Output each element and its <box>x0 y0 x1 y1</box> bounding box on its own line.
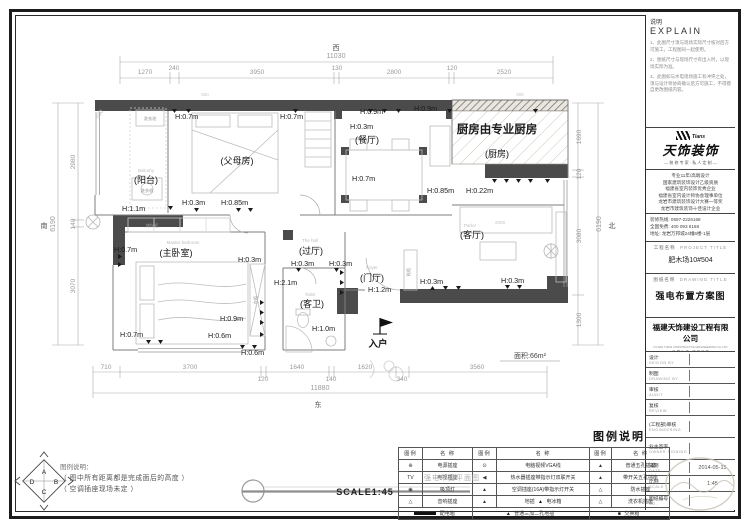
field-drawing-by: 制图DRAWING BY <box>646 368 735 384</box>
legend-header: 图例 <box>473 448 497 460</box>
waterproof-socket-icon: △ <box>590 484 612 496</box>
height-label: H:0.85m <box>427 186 454 195</box>
dim: 140 <box>326 376 337 383</box>
fixture-wardrobe: 衣柜 <box>252 296 259 304</box>
dim: 3700 <box>183 364 198 371</box>
field-cn: 复核 <box>649 402 689 409</box>
switched-socket-icon: ▲ <box>590 472 612 484</box>
kitchen-hatched-area <box>452 111 568 164</box>
legend-label: 电冰箱 <box>546 498 561 505</box>
height-label: H:0.6m <box>241 348 264 357</box>
field-design: 设计DESIGN BY <box>646 352 735 368</box>
credential-line: 龙岩市建筑装饰设计大赛一等奖 <box>650 199 731 206</box>
contact-address: 地址: 龙岩万邦城24幢6楼-1层 <box>650 230 731 237</box>
legend-row: ⊕ 电源插座 ⊙ 电脑视频VGA线 ▲ 普通五孔插座 <box>399 460 670 472</box>
dim-minor: 2000 <box>495 220 506 225</box>
compass-c: C <box>42 489 47 496</box>
legend-label: 热水器插座带指示灯双联开关 <box>497 472 590 484</box>
legend-label: ■ 交换箱 <box>590 508 670 520</box>
explain-title-en: EXPLAIN <box>650 26 731 36</box>
height-label: H:0.6m <box>208 331 231 340</box>
legend-label: 交换箱 <box>624 510 639 517</box>
legend-label: 配电箱 <box>399 508 473 520</box>
height-label: H:1.2m <box>368 285 391 294</box>
height-label: H:0.3m <box>420 277 443 286</box>
dim: 710 <box>101 364 112 371</box>
dim-minor: 600 <box>516 92 524 97</box>
height-label: H:0.7m <box>175 112 198 121</box>
footnote-line: （ 图中所有距离都是完成面后的高度 ） <box>60 474 189 485</box>
washer-socket-icon: △ <box>590 496 612 508</box>
floor-socket-icon: ▲ <box>473 496 497 508</box>
height-label: H:0.7m <box>352 174 375 183</box>
field-en: ENGINEERING <box>649 428 689 432</box>
power-socket-icon: ⊕ <box>399 460 423 472</box>
project-label-en: PROJECT TITLE <box>680 245 727 250</box>
drawing-sheet: A B C D 西 东 南 北 11030 1270 240 3950 130 … <box>0 0 750 525</box>
height-label: H:0.22m <box>466 186 493 195</box>
legend-label: 带开关五孔插座 <box>612 472 670 484</box>
height-label: H:0.3m <box>182 198 205 207</box>
company-section: 福建天饰建设工程有限公司 FUJIAN TIANS CONSTRUCTION E… <box>646 318 735 352</box>
height-label: H:0.85m <box>221 198 248 207</box>
field-cn: 设计 <box>649 354 689 361</box>
room-balcony: (阳台) <box>134 174 158 185</box>
project-title-section: 工程名称 PROJECT TITLE 肥木场10#504 <box>646 242 735 274</box>
drawing-label-en: DRAWING TITLE <box>680 277 728 282</box>
room-parents: (父母房) <box>221 155 254 166</box>
legend-label: 普通三加二孔地插 <box>514 510 554 517</box>
dim: 120 <box>447 65 458 72</box>
field-cn: (工程部)审核 <box>649 421 689 428</box>
brand-logo-icon <box>676 131 690 140</box>
dim: 240 <box>169 65 180 72</box>
field-value-scale: 1:45 <box>690 481 735 487</box>
contact-section: 装修热线: 0597-2226168 全国免费: 400 093 6168 地址… <box>646 214 735 242</box>
dim: 1690 <box>576 129 583 144</box>
legend-header: 名 称 <box>497 448 590 460</box>
room-en-parlor: Parlor <box>464 223 477 228</box>
dim-right-total: 6190 <box>596 216 603 232</box>
dim-minor: 600 <box>201 92 209 97</box>
dim: 120 <box>258 376 269 383</box>
dim: 1640 <box>290 364 305 371</box>
legend-row: △ 音响插座 ▲ 地插 ▲ 电冰箱 △ 洗衣机插座 <box>399 496 670 508</box>
kitchen-hatched-wall <box>452 100 568 111</box>
dim: 3560 <box>470 364 485 371</box>
dim-bottom-total: 11880 <box>311 385 330 392</box>
dim: 3080 <box>576 228 583 243</box>
field-en: DRAWING BY <box>649 377 689 381</box>
fixture-sink: 洗衣池 <box>144 115 157 122</box>
footnote-line: （ 空调插座现场未定 ） <box>60 485 189 496</box>
height-label: H:2.1m <box>274 278 297 287</box>
height-label: H:0.3m <box>329 259 352 268</box>
height-label: H:0.7m <box>114 245 137 254</box>
drawing-label-cn: 图纸名称 <box>653 277 675 282</box>
dim: 140 <box>70 218 77 229</box>
field-review: 复核REVIEW <box>646 400 735 416</box>
height-label: H:0.7m <box>280 112 303 121</box>
explain-note: 3、此图如与水电现场施工有冲突之处，须与设计师协商确认后方可施工，不得擅自更改图… <box>650 74 731 94</box>
room-en-master: Master bedroom <box>167 240 200 245</box>
company-name-en: FUJIAN TIANS CONSTRUCTION ENGINEERING CO… <box>650 345 731 349</box>
field-audit: 审核AUDIT <box>646 384 735 400</box>
fixture-washer: 洗衣机 <box>141 187 154 194</box>
room-en-hall: The hall <box>302 238 318 243</box>
legend-label: 洗衣机插座 <box>612 496 670 508</box>
dim: 1270 <box>138 69 153 76</box>
audio-socket-icon: △ <box>399 496 423 508</box>
field-en: DESIGN BY <box>649 361 689 365</box>
plan-title-faint: 强电布置平面图 <box>250 473 480 483</box>
compass-west: 西 <box>333 44 340 52</box>
dim: 120 <box>576 168 583 179</box>
field-cn: 审核 <box>649 386 689 393</box>
legend-header: 名 称 <box>612 448 670 460</box>
dim: 1300 <box>576 312 583 327</box>
compass-south: 南 <box>41 221 48 230</box>
explain-section: 说明 EXPLAIN 1、此图尺寸须与现场实际尺寸核对后方可施工，工程图同一起使… <box>646 15 735 128</box>
room-bath: (客卫) <box>300 298 324 309</box>
fixture-storage: 储存柜 <box>146 222 159 229</box>
kitchen-note: 厨房由专业厨房 <box>457 122 538 136</box>
dim: 1620 <box>358 364 373 371</box>
height-label: H:0.3m <box>350 122 373 131</box>
height-label: H:0.3m <box>238 255 261 264</box>
field-engineering: (工程部)审核ENGINEERING <box>646 416 735 438</box>
legend-header-row: 图例 名 称 图例 名 称 图例 名 称 <box>399 448 670 460</box>
field-cn: 制图 <box>649 370 689 377</box>
exchange-box-icon: ■ <box>618 511 621 517</box>
room-en-foyer: Foyer <box>366 265 378 270</box>
drawing-title-section: 图纸名称 DRAWING TITLE 强电布置方案图 <box>646 274 735 318</box>
floor-outlet-icon: ▲ <box>506 511 511 517</box>
dim-top-total: 11030 <box>327 53 346 60</box>
area-label: 面积:66m² <box>514 351 547 360</box>
field-value-date: 2014-05-15 <box>690 465 735 471</box>
brand-name: 天饰装饰 <box>650 140 731 159</box>
dim: 130 <box>332 65 343 72</box>
room-living: (客厅) <box>460 229 484 240</box>
credentials-section: 专业11年/高端设计 国家建筑装饰设计乙级资质 福建省室内装饰优秀企业 福建省室… <box>646 170 735 214</box>
compass-a: A <box>42 469 47 476</box>
compass-b: B <box>54 479 58 486</box>
brand-tagline: — 装 修 专 家 · 私 人 定 制 — <box>650 160 731 166</box>
height-label: H:1.1m <box>122 204 145 213</box>
compass-east: 东 <box>315 400 322 409</box>
company-name: 福建天饰建设工程有限公司 <box>650 322 731 344</box>
legend-label: 防水插座 <box>612 484 670 496</box>
room-en-toilet: Toilet <box>305 292 316 297</box>
footnote-block: 图例说明： （ 图中所有距离都是完成面后的高度 ） （ 空调插座现场未定 ） <box>60 461 189 495</box>
legend-label: 地插 ▲ 电冰箱 <box>497 496 590 508</box>
room-master: (主卧室) <box>160 247 193 258</box>
legend-label: 地插 <box>525 498 535 505</box>
dim: 2800 <box>387 69 402 76</box>
dim: 2980 <box>70 154 77 169</box>
field-en: AUDIT <box>649 393 689 397</box>
height-label: H:0.7m <box>120 330 143 339</box>
field-en: REVIEW <box>649 409 689 413</box>
project-label-cn: 工程名称 <box>654 245 676 250</box>
scale-label: SCALE1:45 <box>250 487 480 497</box>
logo-section: Tians 天饰装饰 — 装 修 专 家 · 私 人 定 制 — <box>646 128 735 170</box>
dim: 3950 <box>250 69 265 76</box>
legend-header: 图例 <box>399 448 423 460</box>
height-label: H:1.0m <box>312 324 335 333</box>
room-dining: (餐厅) <box>355 134 379 145</box>
explain-note: 2、图纸尺寸与现场尺寸有出入时，以现场实际为准。 <box>650 57 731 70</box>
compass-north: 北 <box>609 222 616 230</box>
explain-note: 1、此图尺寸须与现场实际尺寸核对后方可施工，工程图同一起使用。 <box>650 40 731 53</box>
room-hall: (过厅) <box>299 245 323 256</box>
legend-label: 空调插座(16A)带指示灯开关 <box>497 484 590 496</box>
vga-icon: ⊙ <box>473 460 497 472</box>
title-block: 说明 EXPLAIN 1、此图尺寸须与现场实际尺寸核对后方可施工，工程图同一起使… <box>645 15 735 510</box>
legend-header: 名 称 <box>423 448 473 460</box>
room-en-balcony: Balcony <box>138 168 155 173</box>
legend-header: 图例 <box>590 448 612 460</box>
legend-label: 配电箱 <box>440 510 455 517</box>
height-label: H:0.9m <box>414 104 437 113</box>
fridge-icon: ▲ <box>538 499 543 505</box>
legend-title: 图例说明 <box>398 428 645 444</box>
legend-label: 电脑视频VGA线 <box>497 460 590 472</box>
fixture-shoe-cabinet: 鞋柜 <box>405 268 412 276</box>
height-label: H:0.9m <box>360 107 383 116</box>
footnote-title: 图例说明： <box>60 461 189 471</box>
height-label: H:0.3m <box>291 259 314 268</box>
compass-d: D <box>30 479 35 486</box>
height-label: H:0.3m <box>501 276 524 285</box>
room-kitchen: (厨房) <box>485 148 509 159</box>
credential-line: 龙岩市建筑装饰十佳设计企业 <box>650 206 731 213</box>
dim-left-total: 6190 <box>50 216 57 232</box>
scalebar-block: 强电布置平面图 SCALE1:45 <box>250 473 480 497</box>
legend-label: 音响插座 <box>423 496 473 508</box>
legend-label: 电源插座 <box>423 460 473 472</box>
distribution-box-icon <box>414 512 436 515</box>
entry-label: 入户 <box>367 338 387 350</box>
project-name: 肥木场10#504 <box>650 255 731 265</box>
height-label: H:0.9m <box>220 314 243 323</box>
legend-label: 普通五孔插座 <box>612 460 670 472</box>
contact-tollfree: 全国免费: 400 093 6168 <box>650 223 731 230</box>
explain-title-cn: 说明 <box>650 17 731 26</box>
room-foyer: (门厅) <box>360 272 384 283</box>
dim: 340 <box>397 376 408 383</box>
five-hole-socket-icon: ▲ <box>590 460 612 472</box>
drawing-name: 强电布置方案图 <box>650 289 731 302</box>
entry-arrow-icon <box>373 318 393 334</box>
dim: 2520 <box>497 69 512 76</box>
dim: 3070 <box>70 278 77 293</box>
legend-label: ▲ 普通三加二孔地插 <box>473 508 590 520</box>
legend-footer-row: 配电箱 ▲ 普通三加二孔地插 ■ 交换箱 <box>399 508 670 520</box>
contact-hotline: 装修热线: 0597-2226168 <box>650 216 731 223</box>
